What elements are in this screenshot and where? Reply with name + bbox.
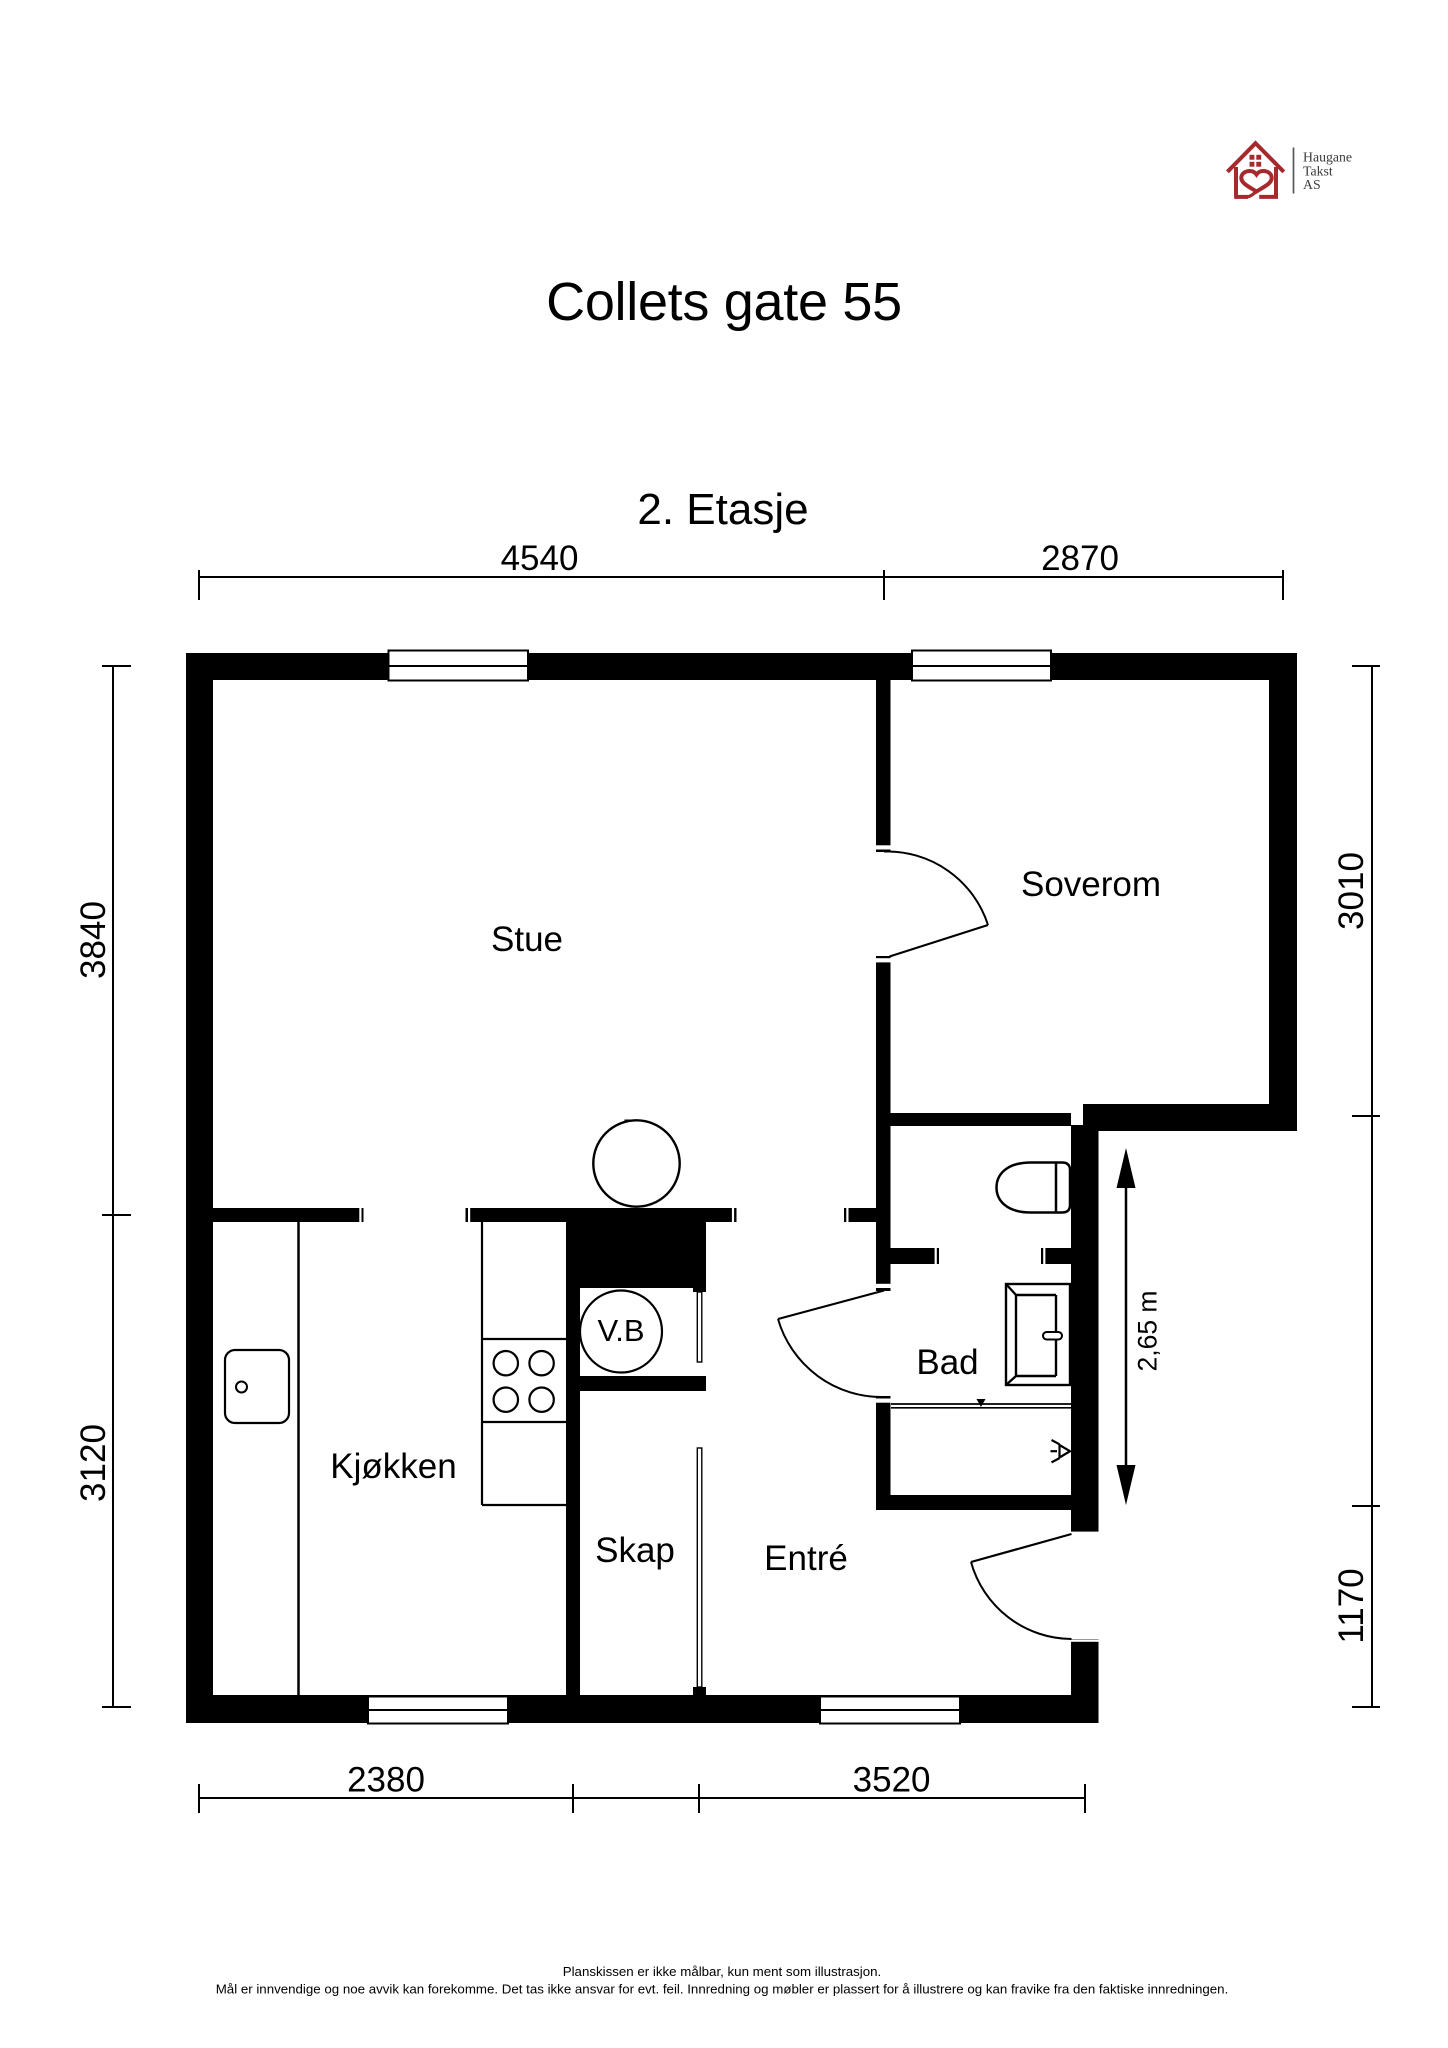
svg-text:AS: AS xyxy=(1303,177,1321,192)
svg-text:Kjøkken: Kjøkken xyxy=(330,1447,456,1486)
svg-text:3010: 3010 xyxy=(1332,852,1371,930)
svg-text:4540: 4540 xyxy=(501,539,579,578)
svg-text:Mål er innvendige og noe avvik: Mål er innvendige og noe avvik kan forek… xyxy=(216,1982,1229,1997)
svg-text:Haugane: Haugane xyxy=(1303,150,1352,165)
svg-text:3840: 3840 xyxy=(74,901,113,979)
svg-text:1170: 1170 xyxy=(1332,1568,1371,1643)
svg-text:Stue: Stue xyxy=(491,920,563,959)
svg-text:2. Etasje: 2. Etasje xyxy=(637,485,808,534)
svg-text:Takst: Takst xyxy=(1303,163,1333,178)
svg-text:V.B: V.B xyxy=(597,1313,644,1348)
svg-text:2380: 2380 xyxy=(347,1761,425,1800)
svg-text:Collets gate 55: Collets gate 55 xyxy=(546,272,902,332)
svg-text:Planskissen er ikke målbar, ku: Planskissen er ikke målbar, kun ment som… xyxy=(563,1964,882,1979)
svg-text:3520: 3520 xyxy=(853,1761,931,1800)
svg-text:Soverom: Soverom xyxy=(1021,865,1161,904)
svg-text:Entré: Entré xyxy=(764,1539,848,1578)
svg-text:2870: 2870 xyxy=(1041,539,1119,578)
svg-text:2,65 m: 2,65 m xyxy=(1133,1290,1163,1371)
svg-text:Skap: Skap xyxy=(595,1531,675,1570)
svg-text:3120: 3120 xyxy=(74,1424,113,1502)
svg-text:Bad: Bad xyxy=(916,1343,978,1382)
